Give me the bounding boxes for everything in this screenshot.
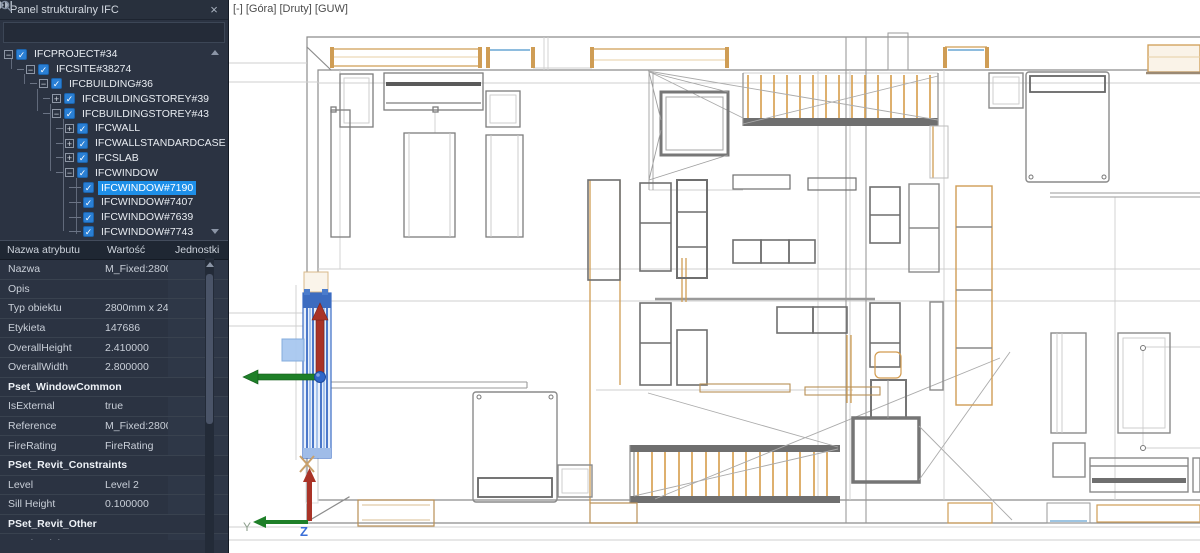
tree-item-label: IFCBUILDINGSTOREY#43 xyxy=(79,107,212,121)
property-row[interactable]: Head Height2.510000 xyxy=(0,534,228,540)
property-name: Level xyxy=(0,479,100,491)
tree-item[interactable]: −✓IFCPROJECT#34 xyxy=(0,47,228,62)
property-unit xyxy=(168,417,228,436)
furniture-bottom-left xyxy=(358,392,637,526)
property-unit xyxy=(168,476,228,495)
property-row[interactable]: Typ obiektu2800mm x 2410... xyxy=(0,299,228,319)
tree-connector xyxy=(56,128,63,129)
property-unit xyxy=(168,299,228,318)
checkbox-checked-icon[interactable]: ✓ xyxy=(83,182,94,193)
tree-item-label: IFCSLAB xyxy=(92,151,142,165)
checkbox-checked-icon[interactable]: ✓ xyxy=(77,167,88,178)
property-value: M_Fixed:2800mm... xyxy=(100,420,168,432)
tree-guide xyxy=(24,74,25,84)
ifc-tree: −✓IFCPROJECT#34−✓IFCSITE#38274−✓IFCBUILD… xyxy=(0,45,228,240)
tree-item-label: IFCWINDOW#7407 xyxy=(98,195,196,209)
tree-connector xyxy=(69,217,81,218)
collapse-icon[interactable]: − xyxy=(52,109,61,118)
property-value: 0.100000 xyxy=(100,498,168,510)
handle-dots xyxy=(477,175,1146,451)
property-row[interactable]: Etykieta147686 xyxy=(0,319,228,339)
staircase-bottom xyxy=(630,358,1000,503)
collapse-icon[interactable]: − xyxy=(65,168,74,177)
tree-item[interactable]: −✓IFCSITE#38274 xyxy=(0,62,228,77)
viewport-controls[interactable]: [-] [Góra] [Druty] [GUW] xyxy=(233,3,348,15)
checkbox-checked-icon[interactable]: ✓ xyxy=(77,152,88,163)
tree-item-label: IFCWINDOW#7190 xyxy=(98,181,196,195)
tree-item-label: IFCWALL xyxy=(92,121,143,135)
search-input[interactable] xyxy=(4,27,219,38)
property-section-header: PSet_Revit_Other xyxy=(0,515,228,535)
expand-icon[interactable]: + xyxy=(65,139,74,148)
tree-item[interactable]: +✓IFCBUILDINGSTOREY#39 xyxy=(0,91,228,106)
tree-guide xyxy=(76,178,77,234)
tree-item[interactable]: ✓IFCWINDOW#7743 xyxy=(0,225,228,240)
tree-connector xyxy=(17,69,24,70)
property-value: 2.800000 xyxy=(100,361,168,373)
furniture-upper-left xyxy=(331,73,523,237)
tree-connector xyxy=(30,83,37,84)
property-name: Typ obiektu xyxy=(0,302,100,314)
tree-guide xyxy=(11,59,12,69)
tree-item-label: IFCWINDOW#7743 xyxy=(98,225,196,239)
property-value: 147686 xyxy=(100,322,168,334)
search-box[interactable] xyxy=(3,22,225,43)
tree-item[interactable]: +✓IFCSLAB xyxy=(0,151,228,166)
furniture-right xyxy=(909,72,1200,492)
property-row[interactable]: IsExternaltrue xyxy=(0,397,228,417)
col-header-value: Wartość xyxy=(100,244,168,256)
checkbox-checked-icon[interactable]: ✓ xyxy=(77,138,88,149)
property-unit xyxy=(168,436,228,455)
floor-plan-light-lines xyxy=(228,37,1200,540)
property-unit xyxy=(168,495,228,514)
property-name: Opis xyxy=(0,283,100,295)
property-row[interactable]: OverallWidth2.800000 xyxy=(0,358,228,378)
tree-item[interactable]: ✓IFCWINDOW#7407 xyxy=(0,195,228,210)
property-section-header: Pset_WindowCommon xyxy=(0,378,228,398)
properties-header: Nazwa atrybutu Wartość Jednostki xyxy=(0,240,228,260)
tree-guide xyxy=(37,89,38,111)
property-row[interactable]: Sill Height0.100000 xyxy=(0,495,228,515)
property-row[interactable]: LevelLevel 2 xyxy=(0,476,228,496)
property-name: IsExternal xyxy=(0,400,100,412)
tree-item[interactable]: +✓IFCWALLSTANDARDCASE xyxy=(0,136,228,151)
panel-titlebar: Panel strukturalny IFC × xyxy=(0,0,228,20)
bench-dark-band xyxy=(1092,478,1186,483)
property-unit xyxy=(168,280,228,299)
shower-enclosure xyxy=(649,72,728,190)
property-unit xyxy=(168,338,228,357)
expand-icon[interactable]: + xyxy=(65,124,74,133)
properties-table: NazwaM_Fixed:2800mm...OpisTyp obiektu280… xyxy=(0,260,228,540)
property-section-header: PSet_Revit_Constraints xyxy=(0,456,228,476)
checkbox-checked-icon[interactable]: ✓ xyxy=(83,197,94,208)
property-unit xyxy=(168,534,228,540)
tree-item-label: IFCWINDOW xyxy=(92,166,161,180)
property-unit xyxy=(168,358,228,377)
property-value: M_Fixed:2800mm... xyxy=(100,263,168,275)
tree-guide xyxy=(63,119,64,231)
property-row[interactable]: Opis xyxy=(0,280,228,300)
tree-connector xyxy=(43,113,50,114)
collapse-icon[interactable]: − xyxy=(39,79,48,88)
staircase-top xyxy=(648,71,948,178)
property-name: Reference xyxy=(0,420,100,432)
tree-connector xyxy=(56,143,63,144)
property-value: FireRating xyxy=(100,440,168,452)
ifc-structure-panel: Panel strukturalny IFC × −✓IFCPROJECT#34… xyxy=(0,0,229,553)
checkbox-checked-icon[interactable]: ✓ xyxy=(64,108,75,119)
tree-item-label: IFCBUILDINGSTOREY#39 xyxy=(79,92,212,106)
tree-scroll-up[interactable] xyxy=(211,50,219,55)
panel-close-icon[interactable]: × xyxy=(206,2,222,18)
tree-connector xyxy=(69,187,81,188)
property-name: OverallHeight xyxy=(0,342,100,354)
expand-icon[interactable]: + xyxy=(52,94,61,103)
col-header-name: Nazwa atrybutu xyxy=(0,244,100,256)
property-name: FireRating xyxy=(0,440,100,452)
property-value: 2.410000 xyxy=(100,342,168,354)
tree-item-label: IFCWINDOW#7639 xyxy=(98,210,196,224)
property-row[interactable]: OverallHeight2.410000 xyxy=(0,338,228,358)
scrollbar-thumb[interactable] xyxy=(206,274,213,424)
tree-connector xyxy=(56,172,63,173)
property-value: 2.510000 xyxy=(100,538,168,540)
property-unit xyxy=(168,397,228,416)
property-row[interactable]: NazwaM_Fixed:2800mm... xyxy=(0,260,228,280)
tree-item[interactable]: −✓IFCBUILDING#36 xyxy=(0,77,228,92)
tree-item-label: IFCPROJECT#34 xyxy=(31,47,120,61)
property-value: 2800mm x 2410... xyxy=(100,302,168,314)
checkbox-checked-icon[interactable]: ✓ xyxy=(16,49,27,60)
selection-grip[interactable] xyxy=(282,339,304,361)
axis-label-z: Z xyxy=(300,524,308,539)
properties-scrollbar[interactable] xyxy=(205,258,214,553)
expand-icon[interactable]: + xyxy=(65,153,74,162)
axis-label-y: Y xyxy=(243,520,251,534)
property-name: Head Height xyxy=(0,538,100,540)
tree-scroll-down[interactable] xyxy=(211,229,219,234)
tree-item-label: IFCBUILDING#36 xyxy=(66,77,156,91)
tree-item[interactable]: +✓IFCWALL xyxy=(0,121,228,136)
checkbox-checked-icon[interactable]: ✓ xyxy=(83,212,94,223)
tree-connector xyxy=(69,231,81,232)
checkbox-checked-icon[interactable]: ✓ xyxy=(77,123,88,134)
tree-connector xyxy=(69,202,81,203)
tree-connector xyxy=(43,98,50,99)
col-header-units: Jednostki xyxy=(168,244,228,256)
checkbox-checked-icon[interactable]: ✓ xyxy=(38,64,49,75)
checkbox-checked-icon[interactable]: ✓ xyxy=(51,78,62,89)
checkbox-checked-icon[interactable]: ✓ xyxy=(83,226,94,237)
property-name: Sill Height xyxy=(0,498,100,510)
tree-item[interactable]: ✓IFCWINDOW#7639 xyxy=(0,210,228,225)
property-row[interactable]: FireRatingFireRating xyxy=(0,436,228,456)
tree-item-label: IFCSITE#38274 xyxy=(53,62,134,76)
property-name: Etykieta xyxy=(0,322,100,334)
collapse-icon[interactable]: − xyxy=(26,65,35,74)
property-value: Level 2 xyxy=(100,479,168,491)
bottom-wall-windows xyxy=(306,455,1200,523)
cabinet-dark-band xyxy=(386,82,481,86)
top-wall-windows xyxy=(330,33,1200,73)
tree-item-label: IFCWALLSTANDARDCASE xyxy=(92,136,228,150)
panel-collapse-icon[interactable] xyxy=(190,2,206,18)
tree-guide xyxy=(50,104,51,171)
tree-connector xyxy=(56,157,63,158)
property-unit xyxy=(168,319,228,338)
tree-item[interactable]: −✓IFCWINDOW xyxy=(0,165,228,180)
collapse-icon[interactable]: − xyxy=(4,50,13,59)
property-value: true xyxy=(100,400,168,412)
checkbox-checked-icon[interactable]: ✓ xyxy=(64,93,75,104)
tree-item[interactable]: ✓IFCWINDOW#7190 xyxy=(0,180,228,195)
furniture-center xyxy=(588,175,901,395)
panel-title: Panel strukturalny IFC xyxy=(10,4,190,16)
tree-item[interactable]: −✓IFCBUILDINGSTOREY#43 xyxy=(0,106,228,121)
property-row[interactable]: ReferenceM_Fixed:2800mm... xyxy=(0,417,228,437)
property-unit xyxy=(168,260,228,279)
property-name: Nazwa xyxy=(0,263,100,275)
property-name: OverallWidth xyxy=(0,361,100,373)
